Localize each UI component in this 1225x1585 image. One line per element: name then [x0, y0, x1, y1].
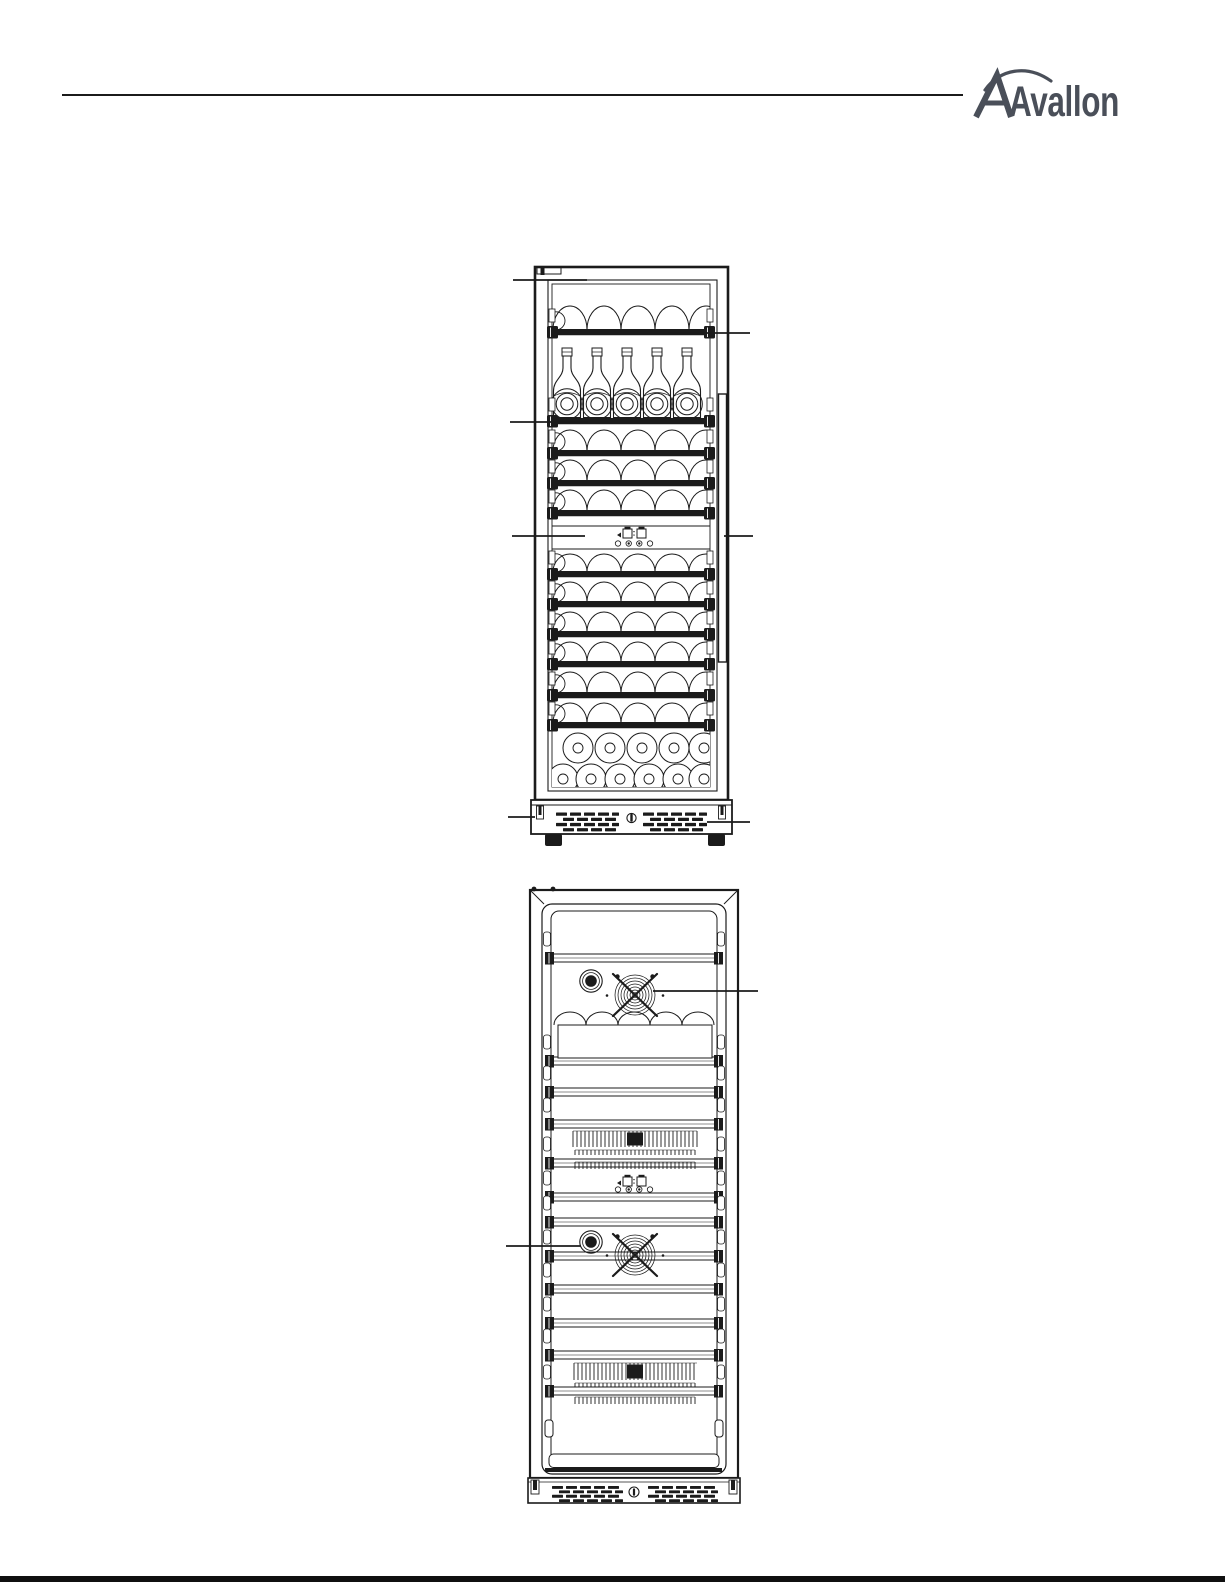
- footer-rule: [0, 1576, 1225, 1582]
- floor-edge: [545, 1468, 722, 1472]
- door-lock-icon: [627, 813, 636, 822]
- door-handle: [719, 394, 727, 662]
- foot: [545, 834, 562, 846]
- foot: [708, 834, 725, 846]
- header-rule: [62, 94, 963, 96]
- front-view-diagram: [495, 258, 815, 858]
- floor-plate: [549, 1454, 719, 1468]
- base-vent: [528, 1478, 740, 1503]
- brand-logo: Avallon: [965, 55, 1130, 125]
- base-vent: [531, 800, 732, 834]
- manual-page: Avallon: [0, 0, 1225, 1585]
- door-lock-icon: [629, 1487, 639, 1497]
- interior-view-diagram: [495, 860, 815, 1520]
- display-panel: [558, 1025, 712, 1058]
- wall-tab: [715, 1420, 723, 1437]
- logo-text: Avallon: [1009, 78, 1119, 125]
- wall-tab: [545, 1420, 553, 1437]
